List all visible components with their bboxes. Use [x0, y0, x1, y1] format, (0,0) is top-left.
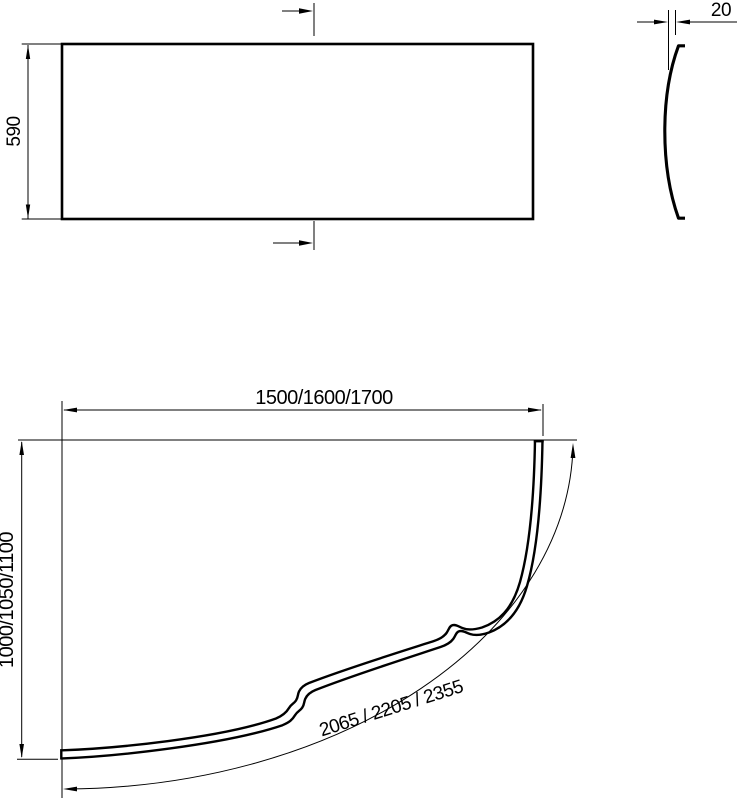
arrowhead-up-icon	[19, 441, 24, 455]
plan-view-inner-edge	[63, 440, 536, 750]
arrowhead-right-icon	[299, 8, 313, 14]
technical-drawing: 590 20 1500/1600/1700 1000/1050/1100 206…	[0, 0, 737, 798]
front-view-outline	[62, 44, 533, 219]
arrowhead-left-icon	[63, 787, 77, 792]
arrowhead-right-icon	[654, 20, 668, 25]
front-view-height-label: 590	[4, 116, 25, 146]
bath-panel-dimension-drawing: 590 20 1500/1600/1700 1000/1050/1100 206…	[0, 0, 737, 798]
plan-view-arc-length-label: 2065 / 2205 / 2355	[317, 676, 466, 741]
arrowhead-up-icon	[26, 45, 30, 59]
arrowhead-right-icon	[528, 408, 542, 413]
arrowhead-up-icon	[571, 443, 576, 458]
arrowhead-left-icon	[63, 408, 77, 413]
arrowhead-right-icon	[299, 240, 313, 246]
front-view-height-dimension	[22, 44, 62, 219]
front-view-center-mark-bottom	[273, 221, 314, 250]
arrowhead-down-icon	[19, 744, 24, 758]
plan-view-depth-dimension	[19, 441, 24, 758]
side-view-thickness-label: 20	[711, 0, 731, 21]
plan-view-width-label: 1500/1600/1700	[255, 387, 393, 409]
plan-view-outer-edge	[63, 440, 543, 758]
front-view-center-mark-top	[282, 3, 314, 36]
side-view-profile	[665, 46, 685, 218]
arrowhead-down-icon	[26, 205, 30, 219]
arrowhead-left-icon	[676, 20, 690, 25]
plan-view-depth-label: 1000/1050/1100	[0, 532, 18, 668]
